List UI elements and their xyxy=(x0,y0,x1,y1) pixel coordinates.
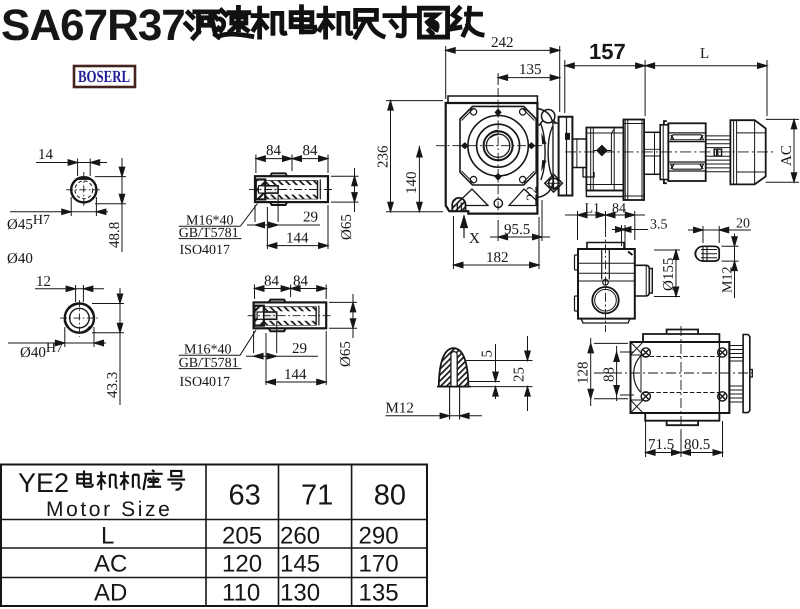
svg-text:20: 20 xyxy=(736,217,750,232)
svg-text:71: 71 xyxy=(301,480,333,512)
svg-text:260: 260 xyxy=(280,523,320,550)
svg-text:BOSERL: BOSERL xyxy=(78,67,130,86)
svg-text:L: L xyxy=(700,46,709,62)
svg-text:182: 182 xyxy=(486,250,509,266)
svg-text:AC: AC xyxy=(94,551,127,578)
svg-text:YE2: YE2 xyxy=(18,468,69,498)
svg-text:5: 5 xyxy=(480,350,496,358)
svg-text:135: 135 xyxy=(519,62,542,78)
svg-text:AD: AD xyxy=(94,580,127,607)
svg-text:ISO4017: ISO4017 xyxy=(180,375,231,390)
svg-text:170: 170 xyxy=(359,551,399,578)
svg-text:22: 22 xyxy=(525,186,541,201)
svg-text:88: 88 xyxy=(602,367,618,382)
svg-text:84: 84 xyxy=(264,274,280,290)
svg-text:L: L xyxy=(101,523,114,550)
svg-text:71.5: 71.5 xyxy=(648,437,674,453)
svg-text:M12: M12 xyxy=(386,401,414,417)
svg-text:14: 14 xyxy=(38,147,54,163)
svg-text:ISO4017: ISO4017 xyxy=(180,243,231,258)
svg-text:120: 120 xyxy=(222,551,262,578)
svg-text:GB/T5781: GB/T5781 xyxy=(179,226,239,241)
svg-text:84: 84 xyxy=(293,274,309,290)
svg-text:M12: M12 xyxy=(721,267,736,293)
svg-text:80.5: 80.5 xyxy=(684,437,710,453)
svg-text:236: 236 xyxy=(376,145,392,168)
svg-text:3.5: 3.5 xyxy=(650,218,668,233)
svg-text:205: 205 xyxy=(222,523,262,550)
svg-text:63: 63 xyxy=(229,480,261,512)
svg-text:Motor Size: Motor Size xyxy=(46,498,172,521)
svg-text:145: 145 xyxy=(280,551,320,578)
svg-text:144: 144 xyxy=(286,231,309,247)
svg-text:43.3: 43.3 xyxy=(105,372,121,398)
svg-text:140: 140 xyxy=(404,172,420,195)
svg-text:GB/T5781: GB/T5781 xyxy=(179,356,239,371)
svg-text:130: 130 xyxy=(280,580,320,607)
svg-text:12: 12 xyxy=(36,274,51,290)
svg-text:25: 25 xyxy=(512,367,528,382)
svg-text:SA67R37: SA67R37 xyxy=(1,1,185,50)
svg-text:L1: L1 xyxy=(585,202,601,217)
svg-text:AC: AC xyxy=(779,145,795,166)
svg-text:X: X xyxy=(469,231,480,247)
svg-text:29: 29 xyxy=(292,341,307,357)
svg-text:Ø65: Ø65 xyxy=(338,341,354,367)
svg-text:Ø40: Ø40 xyxy=(7,251,33,267)
svg-text:Ø65: Ø65 xyxy=(339,214,355,240)
svg-text:84: 84 xyxy=(266,143,282,159)
svg-text:95.5: 95.5 xyxy=(504,222,530,238)
svg-text:290: 290 xyxy=(359,523,399,550)
svg-text:135: 135 xyxy=(359,580,399,607)
svg-text:80: 80 xyxy=(374,480,406,512)
svg-text:144: 144 xyxy=(284,367,307,383)
svg-text:48.8: 48.8 xyxy=(107,222,123,248)
svg-text:29: 29 xyxy=(303,210,318,226)
svg-text:Ø155: Ø155 xyxy=(661,258,677,291)
svg-text:128: 128 xyxy=(576,362,592,385)
svg-text:242: 242 xyxy=(491,35,514,51)
svg-text:157: 157 xyxy=(589,39,626,64)
svg-text:84: 84 xyxy=(303,143,319,159)
svg-text:84: 84 xyxy=(612,202,626,217)
svg-text:110: 110 xyxy=(222,580,260,607)
